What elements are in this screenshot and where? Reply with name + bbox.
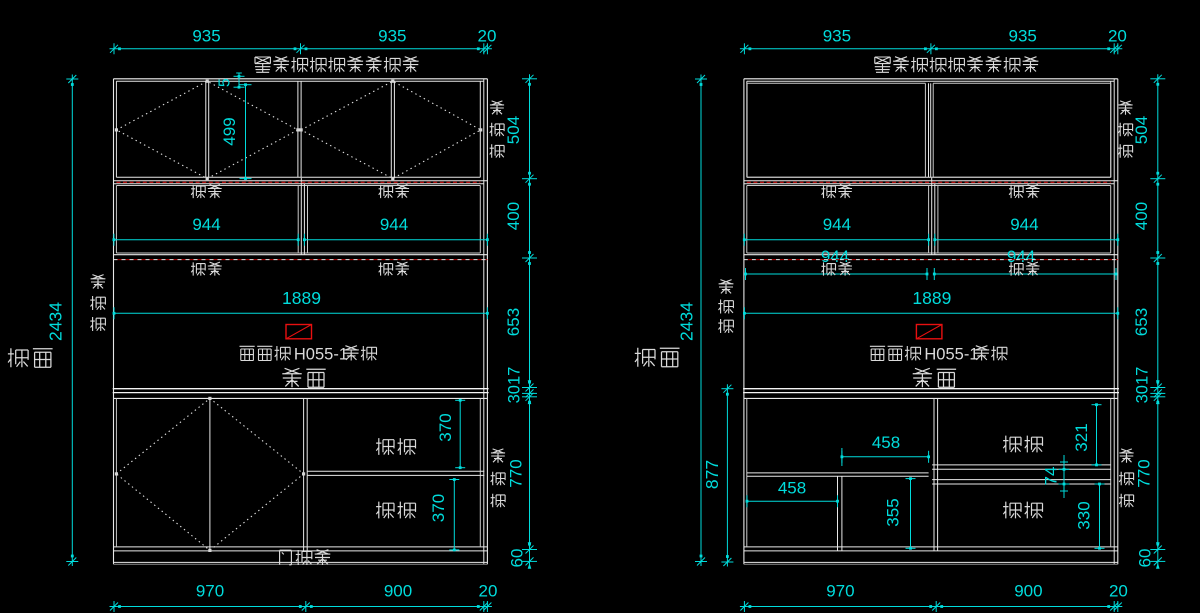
svg-text:H055-1: H055-1 xyxy=(294,346,348,364)
svg-text:770: 770 xyxy=(1134,459,1153,487)
svg-text:458: 458 xyxy=(872,433,900,452)
svg-text:944: 944 xyxy=(823,215,851,234)
svg-text:458: 458 xyxy=(778,479,806,498)
svg-text:321: 321 xyxy=(1072,423,1091,451)
svg-text:900: 900 xyxy=(1014,582,1042,601)
svg-text:74: 74 xyxy=(1041,467,1060,486)
svg-text:944: 944 xyxy=(1010,215,1038,234)
svg-text:504: 504 xyxy=(504,116,523,144)
svg-text:355: 355 xyxy=(883,498,902,526)
svg-text:400: 400 xyxy=(504,202,523,230)
svg-text:935: 935 xyxy=(378,27,406,46)
svg-text:900: 900 xyxy=(384,582,412,601)
svg-text:1889: 1889 xyxy=(282,288,321,308)
svg-text:877: 877 xyxy=(702,460,722,489)
svg-text:3017: 3017 xyxy=(1134,367,1152,404)
svg-text:935: 935 xyxy=(192,27,220,46)
svg-text:944: 944 xyxy=(192,215,220,234)
svg-text:60: 60 xyxy=(507,549,526,568)
svg-text:3017: 3017 xyxy=(506,367,524,404)
svg-text:2434: 2434 xyxy=(46,302,66,341)
svg-text:499: 499 xyxy=(220,117,239,145)
svg-text:653: 653 xyxy=(1132,308,1151,336)
svg-text:970: 970 xyxy=(826,582,854,601)
svg-text:330: 330 xyxy=(1074,501,1093,529)
svg-text:935: 935 xyxy=(1009,27,1037,46)
svg-text:504: 504 xyxy=(1132,116,1151,144)
svg-text:970: 970 xyxy=(196,582,224,601)
svg-text:1889: 1889 xyxy=(912,288,951,308)
svg-text:5: 5 xyxy=(216,78,233,87)
svg-text:20: 20 xyxy=(478,27,497,46)
svg-text:370: 370 xyxy=(429,494,448,522)
svg-text:H055-1: H055-1 xyxy=(924,346,978,364)
svg-text:60: 60 xyxy=(1135,549,1154,568)
svg-text:370: 370 xyxy=(436,413,455,441)
svg-text:20: 20 xyxy=(1109,582,1128,601)
svg-text:400: 400 xyxy=(1132,202,1151,230)
svg-text:944: 944 xyxy=(380,215,408,234)
svg-text:653: 653 xyxy=(504,308,523,336)
svg-text:935: 935 xyxy=(823,27,851,46)
svg-text:20: 20 xyxy=(479,582,498,601)
svg-text:770: 770 xyxy=(506,459,525,487)
svg-text:2434: 2434 xyxy=(676,302,696,341)
svg-text:20: 20 xyxy=(1108,27,1127,46)
